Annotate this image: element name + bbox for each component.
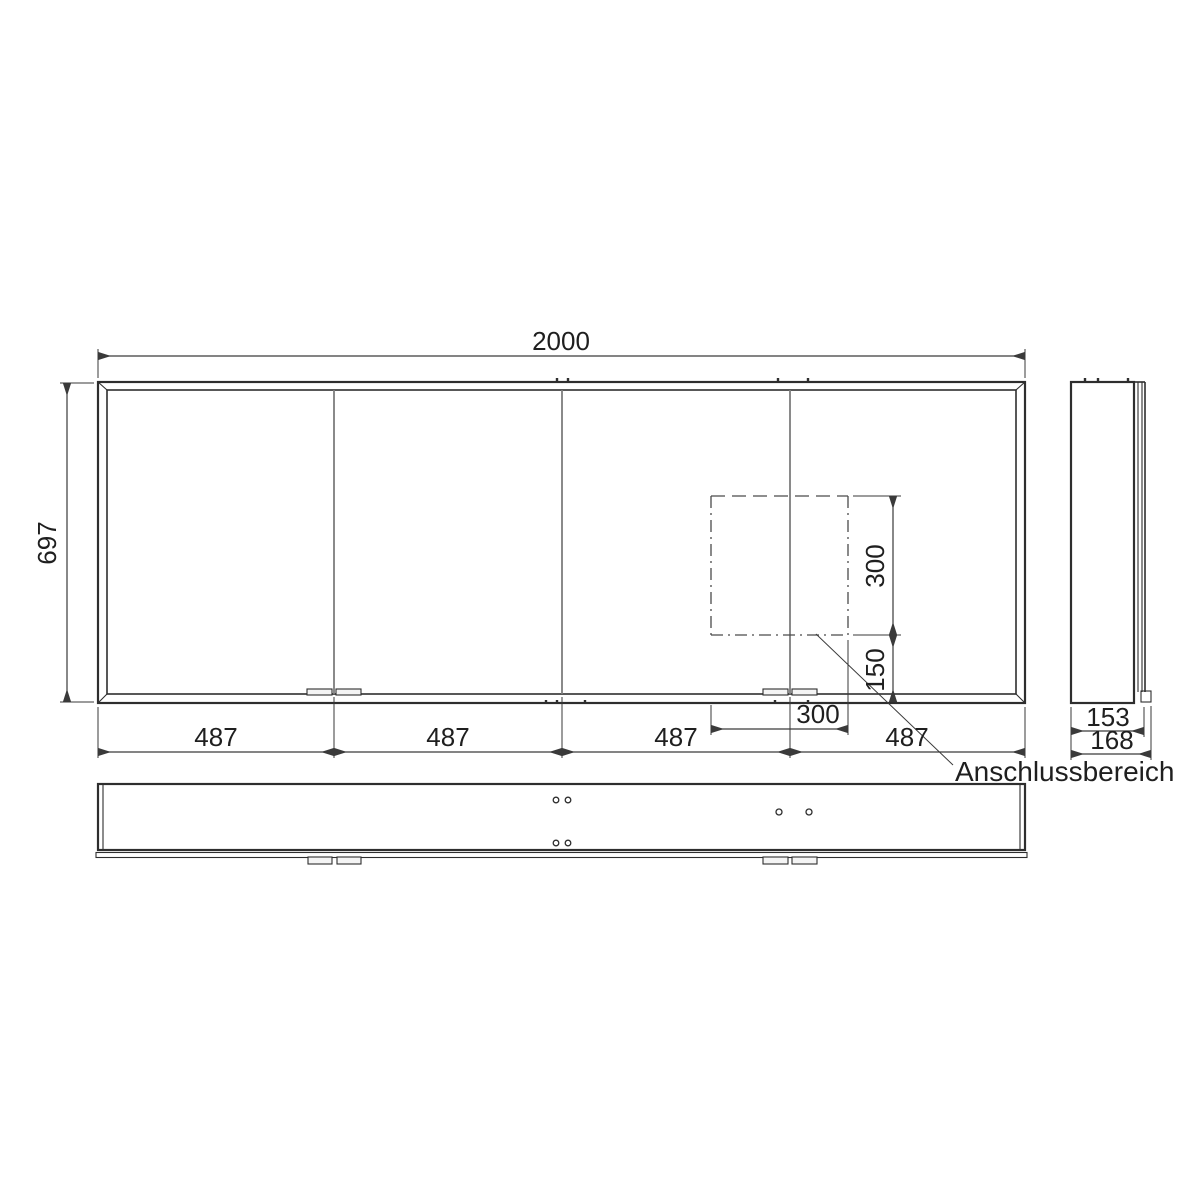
dimension-value-300-v: 300 [860,544,890,587]
drill-hole [565,840,571,846]
door-handle-tab [792,689,817,695]
dimension-connection-width: 300 [711,640,848,735]
dimension-value-2000: 2000 [532,326,590,356]
door-handle-tab [336,689,361,695]
side-bottom-protrusion [1141,691,1151,702]
dimension-value-697: 697 [32,521,62,564]
door-handle-tab-bottom [308,857,332,864]
connection-area-label: Anschlussbereich [955,756,1174,787]
drill-hole [553,840,559,846]
dimension-value-487-3: 487 [654,722,697,752]
drill-hole [806,809,812,815]
door-handle-tab-bottom [337,857,361,864]
drill-hole [565,797,571,803]
dimension-door-widths: 487 487 487 487 [98,697,1025,758]
door-handle-tab [763,689,788,695]
dimension-overall-width: 2000 [98,326,1025,378]
door-handle-tab [307,689,332,695]
dimension-overall-height: 697 [32,383,94,702]
side-view [1071,378,1151,703]
technical-drawing-page: Anschlussbereich 2000 697 487 487 487 48… [0,0,1200,1200]
side-body [1071,382,1134,703]
dimension-value-487-1: 487 [194,722,237,752]
bottom-view [96,784,1027,864]
dimension-connection-vertical: 300 150 [853,496,901,702]
bevel-bottom-left [98,694,107,703]
bevel-top-right [1016,382,1025,390]
bevel-top-left [98,382,107,390]
drill-hole [776,809,782,815]
dimension-value-168: 168 [1090,725,1133,755]
bottom-front-edge [96,853,1027,858]
drill-hole [553,797,559,803]
bottom-body [98,784,1025,850]
mirror-cabinet-dimension-drawing: Anschlussbereich 2000 697 487 487 487 48… [0,0,1200,1200]
dimension-depth: 153 168 [1071,702,1151,760]
dimension-value-487-2: 487 [426,722,469,752]
door-handle-tab-bottom [792,857,817,864]
dimension-value-487-4: 487 [885,722,928,752]
bevel-bottom-right [1016,694,1025,703]
dimension-value-300-h: 300 [796,699,839,729]
dimension-value-150: 150 [860,648,890,691]
door-handle-tab-bottom [763,857,788,864]
